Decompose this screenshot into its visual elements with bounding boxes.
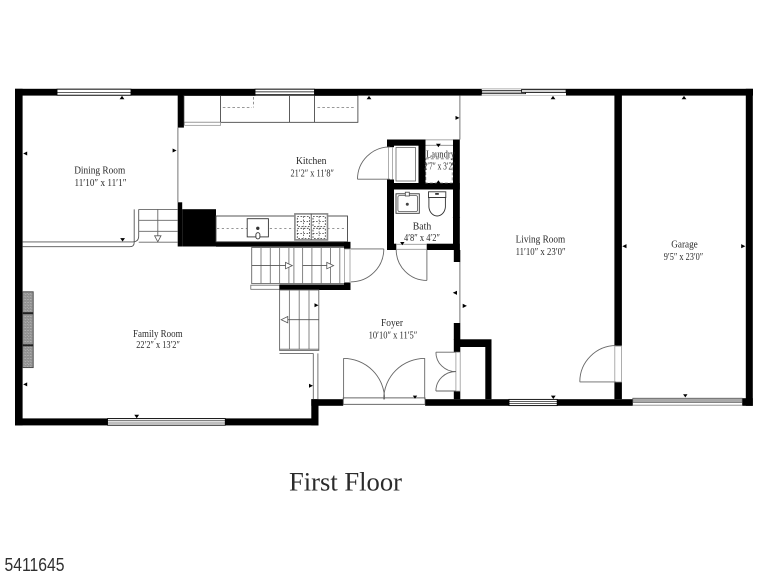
svg-text:Laundry: Laundry (426, 149, 455, 161)
svg-text:4′8″ x 4′2″: 4′8″ x 4′2″ (404, 232, 440, 244)
svg-text:11′10″ x 11′1″: 11′10″ x 11′1″ (75, 177, 127, 189)
svg-text:Kitchen: Kitchen (296, 155, 327, 167)
svg-text:5411645: 5411645 (5, 554, 65, 575)
svg-text:2′7″ x 3′2″: 2′7″ x 3′2″ (424, 161, 456, 173)
svg-text:Bath: Bath (413, 221, 432, 233)
svg-text:First Floor: First Floor (289, 468, 402, 497)
svg-text:Foyer: Foyer (381, 317, 403, 329)
svg-text:10′10″ x 11′5″: 10′10″ x 11′5″ (369, 329, 418, 341)
svg-text:21′2″ x 11′8″: 21′2″ x 11′8″ (290, 168, 334, 180)
svg-text:22′2″ x 13′2″: 22′2″ x 13′2″ (136, 339, 180, 351)
svg-text:11′10″ x 23′0″: 11′10″ x 23′0″ (516, 246, 566, 258)
svg-text:9′5″ x 23′0″: 9′5″ x 23′0″ (664, 251, 704, 263)
svg-text:Garage: Garage (671, 239, 698, 251)
svg-text:Living Room: Living Room (516, 234, 566, 246)
svg-text:Dining Room: Dining Room (74, 164, 125, 176)
